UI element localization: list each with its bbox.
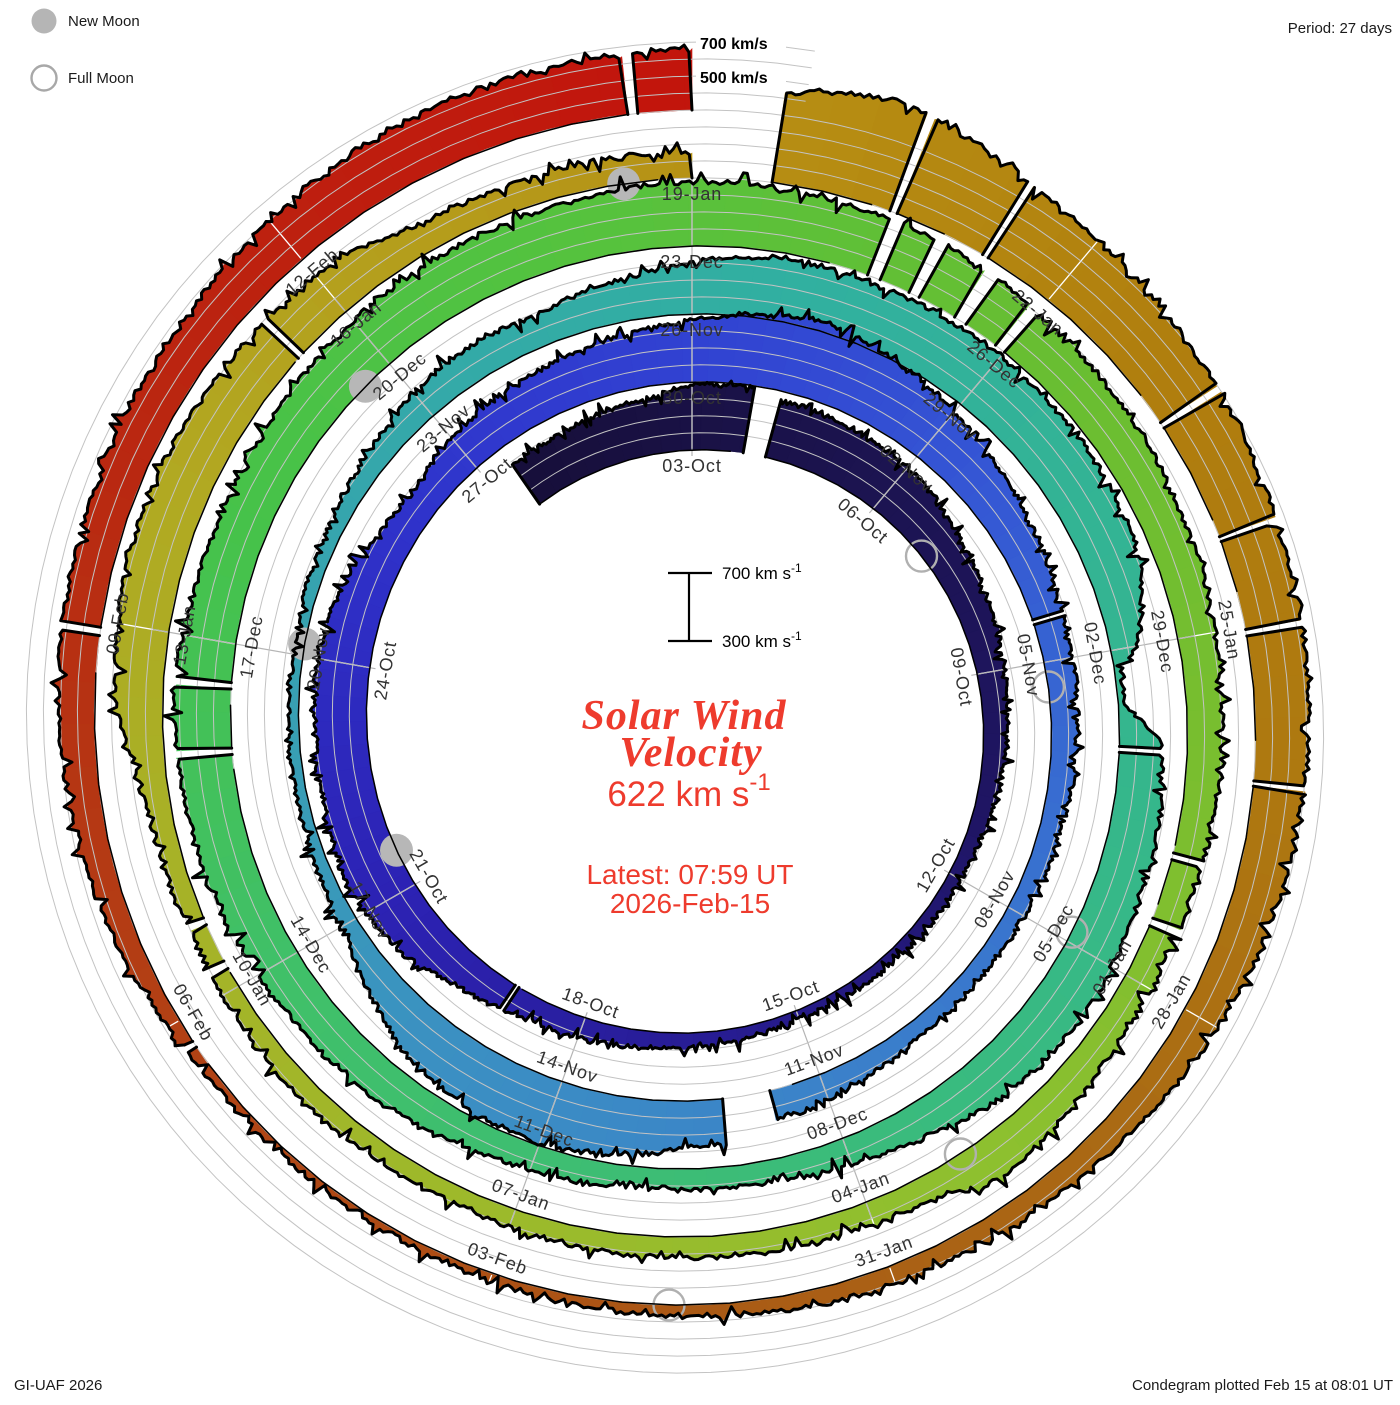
svg-text:Latest: 07:59 UT: Latest: 07:59 UT <box>586 859 793 890</box>
svg-text:Condegram plotted Feb 15 at 08: Condegram plotted Feb 15 at 08:01 UT <box>1132 1377 1393 1394</box>
svg-text:Velocity: Velocity <box>619 730 762 776</box>
svg-text:New Moon: New Moon <box>68 13 140 30</box>
svg-text:300 km s-1: 300 km s-1 <box>722 629 802 651</box>
svg-text:Period: 27 days: Period: 27 days <box>1288 20 1392 37</box>
svg-text:700 km s-1: 700 km s-1 <box>722 561 802 583</box>
svg-text:500 km/s: 500 km/s <box>700 70 768 87</box>
svg-text:23-Dec: 23-Dec <box>660 252 723 272</box>
svg-text:30-Oct: 30-Oct <box>662 388 721 408</box>
svg-text:03-Oct: 03-Oct <box>662 456 721 476</box>
svg-text:GI-UAF 2026: GI-UAF 2026 <box>14 1377 102 1394</box>
svg-text:2026-Feb-15: 2026-Feb-15 <box>610 888 770 919</box>
svg-text:700 km/s: 700 km/s <box>700 36 768 53</box>
svg-text:Full Moon: Full Moon <box>68 70 134 87</box>
svg-text:19-Jan: 19-Jan <box>662 184 722 204</box>
svg-text:622 km s-1: 622 km s-1 <box>607 769 770 814</box>
svg-text:26-Nov: 26-Nov <box>660 320 723 340</box>
